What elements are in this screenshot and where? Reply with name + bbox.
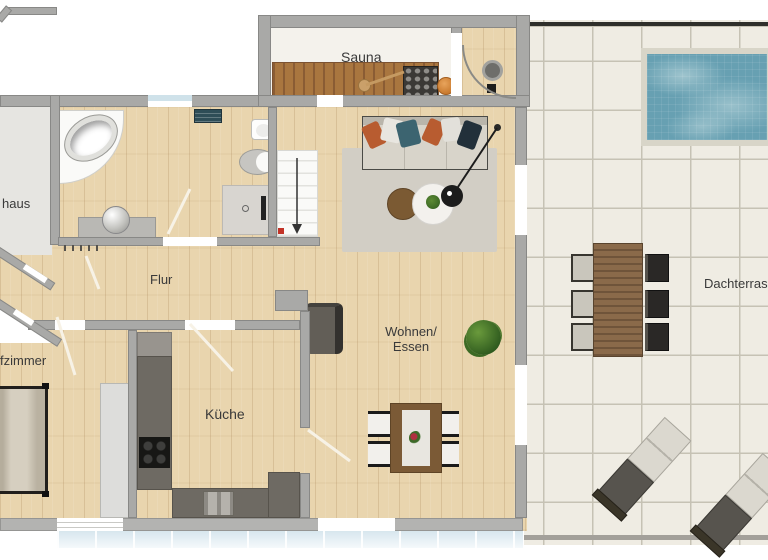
room-label-flur: Flur [150, 272, 172, 287]
window-glazing [148, 95, 192, 101]
door-opening [185, 320, 235, 330]
dining-chair [440, 441, 459, 467]
large-plant [466, 320, 501, 355]
table-plant [426, 195, 440, 209]
terrace-chair [571, 290, 595, 318]
cooktop [139, 437, 170, 468]
lower-roof-band [57, 531, 523, 548]
radiator-ticks [64, 245, 102, 251]
wall [300, 311, 310, 428]
terrace-chair [645, 254, 669, 282]
terrace-chair [645, 323, 669, 351]
room-label-wohnen-line1: Wohnen/ [380, 324, 442, 339]
shower-fixture [261, 196, 266, 220]
wall [258, 15, 271, 107]
kitchen-tall-unit [137, 332, 172, 358]
shower-drain [242, 205, 249, 212]
pool [641, 48, 768, 146]
window [57, 518, 123, 531]
wall [268, 107, 277, 237]
wall [128, 330, 137, 518]
terrace-chair [571, 254, 595, 282]
room-label-dachterrasse: Dachterras [704, 276, 768, 291]
bed-foot [42, 383, 49, 389]
table-flowers [409, 431, 423, 445]
floor-plan: Sauna haus Flur fzimmer Küche Wohnen/ Es… [0, 0, 768, 560]
room-label-stairhouse: haus [2, 196, 30, 211]
floor-lamp-highlight [447, 191, 452, 196]
dining-chair [440, 411, 459, 437]
kitchen-counter-return [268, 472, 300, 518]
door-opening [163, 237, 217, 246]
wall [516, 15, 530, 107]
nook-shower-stand [487, 84, 496, 93]
dining-chair [368, 411, 392, 437]
sauna-ladle [358, 79, 371, 92]
wall [258, 15, 530, 28]
wall [7, 7, 57, 15]
wall [300, 473, 310, 518]
door-opening [55, 320, 85, 330]
floor-lamp-base [494, 124, 501, 131]
window [318, 518, 395, 531]
wall [50, 95, 60, 245]
vanity-basin [102, 206, 130, 234]
door-opening [317, 95, 343, 107]
window [515, 165, 527, 235]
sauna-heater [403, 66, 438, 97]
outdoor-dining-table [593, 243, 643, 357]
terrace-chair [571, 323, 595, 351]
bed-foot [42, 491, 49, 497]
room-label-kueche: Küche [205, 407, 245, 422]
stairhouse-area [0, 97, 52, 255]
wall [0, 95, 268, 107]
armchair [305, 303, 343, 354]
dining-chair [368, 441, 392, 467]
terrace-chair [645, 290, 669, 318]
wall [258, 95, 530, 107]
sauna-door [451, 33, 462, 96]
stair-marker [278, 228, 284, 234]
room-label-wohnen-line2: Essen [380, 339, 442, 354]
wall [275, 290, 308, 311]
nook-shower-plate [482, 60, 503, 81]
terrace-top-edge [524, 22, 768, 26]
towel-radiator [194, 109, 222, 123]
floor-lamp-shade [441, 185, 463, 207]
kitchen-sink [203, 491, 234, 516]
bed [0, 386, 48, 494]
staircase [277, 150, 318, 237]
room-label-bedroom: fzimmer [0, 353, 46, 368]
room-label-sauna: Sauna [341, 50, 381, 65]
kitchen-counter-left [137, 356, 172, 490]
room-label-wohnen: Wohnen/ Essen [380, 324, 442, 354]
window [515, 365, 527, 445]
